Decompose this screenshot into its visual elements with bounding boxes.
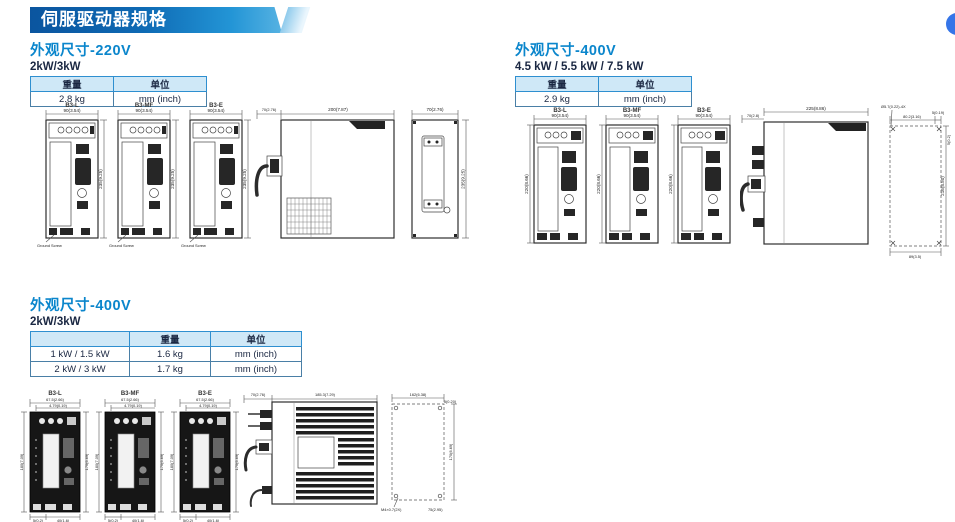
dim-height-label: 220(8.66) [596,174,601,194]
terminal-wires [248,414,260,426]
dim-height-label: 220(8.66) [668,174,673,194]
dim-mount-height-label: 216(8.50) [940,176,945,196]
unit-value: mm (inch) [211,347,302,362]
dim-width2-label: 4.79(0.19) [49,403,67,408]
section2-title: 外观尺寸-400V [515,39,616,60]
dim-offset-label: 5(0.20) [444,399,457,404]
mounting-outline-400v-small: 162(6.38) 5(0.20) 170(6.69) M4×0.7(2X) 7… [380,388,460,513]
cable [245,447,256,470]
dim-height-left-label: 180(7.09) [95,453,99,470]
dim-height-label: 235(9.25) [242,169,247,189]
section2-power-rating: 4.5 kW / 5.5 kW / 7.5 kW [515,61,643,73]
dim-bottom-width-label: 75(2.95) [428,507,443,512]
cable-2 [251,490,262,506]
weight-header: 重量 [31,77,114,92]
drive-rear-view-220v: 70(2.76) 235(9.25) [400,100,475,250]
section1-drawings: B3-L 90(3.54) 235(9.25) Ground Screw B3-… [28,100,478,260]
dim-mount-width-label: 80.2(3.16) [903,114,921,119]
dim-width-label: 67.5(2.66) [196,397,214,402]
section3-title: 外观尺寸-400V [30,294,131,315]
page-edge-bubble [946,13,955,35]
unit-value: mm (inch) [211,362,302,377]
dim-height-label: 235(9.25) [98,169,103,189]
dim-height-label: 220(8.66) [524,174,529,194]
weight-value: 1.7 kg [130,362,211,377]
ground-screw-label: Ground Screw [181,243,206,248]
table-header-row: 重量 单位 [31,77,207,92]
drive-front-b3l-400v: B3-L 90(3.54) 220(8.66) [524,105,599,255]
document-page: 伺服驱动器规格 外观尺寸-220V 2kW/3kW 重量 单位 2.8 kg m… [0,0,955,522]
drive-front-b3l-400v-small: B3-L 67.5(2.66) 4.79(0.19) 180(7.09) 170… [20,388,95,522]
dim-height-label: 235(9.25) [461,169,466,189]
dim-offset-label: 5(0.19) [932,110,945,115]
dim-connector-label: 70(2.8) [747,113,760,118]
dim-height-label: 235(9.25) [170,169,175,189]
dim-height-left-label: 180(7.09) [20,453,24,470]
drive-side-view-220v: 70(2.76) 200(7.87) [253,100,403,250]
dim-bottom1-label: 5(0.2) [183,518,194,522]
dim-depth-label: 185.3(7.29) [315,392,336,397]
dim-depth-label: 200(7.87) [328,107,348,112]
banner-title: 伺服驱动器规格 [30,7,282,33]
dim-width-label: 90(3.54) [695,113,713,118]
dim-width-label: 70(2.76) [426,107,444,112]
dim-depth-label: 225(8.86) [806,106,826,111]
dim-width2-label: 4.79(0.19) [124,403,142,408]
model-value: 1 kW / 1.5 kW [31,347,130,362]
dim-bottom2-label: 40(1.6) [207,518,220,522]
dim-width-label: 90(3.54) [623,113,641,118]
table-header-row: 重量 单位 [31,332,302,347]
title-banner: 伺服驱动器规格 [30,7,282,33]
dim-height-right-label: 170(6.69) [234,453,239,470]
section2-drawings: B3-L 90(3.54) 220(8.66) B3-MF 90(3.54) 2… [512,100,955,265]
dim-width-label: 90(3.54) [63,108,81,113]
section1-title: 外观尺寸-220V [30,39,131,60]
section3-spec-table: 重量 单位 1 kW / 1.5 kW 1.6 kg mm (inch) 2 k… [30,331,302,377]
drive-front-b3e-220v: B3-E 90(3.54) 235(9.25) Ground Screw [180,100,255,250]
drive-front-b3e-400v-small: B3-E 67.5(2.66) 4.79(0.19) 180(7.09) 170… [170,388,245,522]
dim-connector-label: 70(2.76) [251,392,266,397]
unit-header: 单位 [599,77,692,92]
dim-width-label: 67.5(2.66) [121,397,139,402]
screw-spec-label: M4×0.7(2X) [381,507,402,512]
dim-height-left-label: 180(7.09) [170,453,174,470]
unit-header: 单位 [114,77,207,92]
unit-header: 单位 [211,332,302,347]
drive-front-b3mf-400v-small: B3-MF 67.5(2.66) 4.79(0.19) 180(7.09) 17… [95,388,170,522]
section3-power-rating: 2kW/3kW [30,316,81,328]
drive-side-view-400v: 225(8.86) 70(2.8) [740,100,875,255]
dim-width-label: 67.5(2.66) [46,397,64,402]
banner-tail-decoration [280,7,310,33]
weight-header: 重量 [516,77,599,92]
dim-connector-label: 70(2.76) [262,107,277,112]
dim-bottom-width-label: 89(3.5) [909,254,922,259]
dim-width2-label: 4.79(0.19) [199,403,217,408]
cable [741,184,748,210]
dim-height-right-label: 170(6.69) [159,453,164,470]
dim-bottom1-label: 5(0.2) [33,518,44,522]
cable [256,166,267,195]
weight-header: 重量 [130,332,211,347]
hole-callout-label: Ø5.7(0.22)-4X [881,104,906,109]
dim-bottom1-label: 5(0.2) [108,518,119,522]
dim-corner-label: 5(0.2) [946,134,951,145]
model-header [31,332,130,347]
dim-width-label: 90(3.54) [135,108,153,113]
drive-front-b3mf-220v: B3-MF 90(3.54) 235(9.25) Ground Screw [108,100,183,250]
weight-value: 1.6 kg [130,347,211,362]
ground-screw-label: Ground Screw [109,243,134,248]
corner-screw-marks [891,127,941,245]
drive-front-b3e-400v: B3-E 90(3.54) 220(8.66) [668,105,743,255]
dim-width-label: 90(3.54) [207,108,225,113]
dim-mount-width-label: 162(6.38) [410,392,427,397]
dim-width-label: 90(3.54) [551,113,569,118]
table-row: 1 kW / 1.5 kW 1.6 kg mm (inch) [31,347,302,362]
dim-mount-height-label: 170(6.69) [448,443,453,460]
section1-power-rating: 2kW/3kW [30,61,81,73]
drive-front-b3l-220v: B3-L 90(3.54) 235(9.25) Ground Screw [36,100,111,250]
ground-screw-label: Ground Screw [37,243,62,248]
drive-front-b3mf-400v: B3-MF 90(3.54) 220(8.66) [596,105,671,255]
table-row: 2 kW / 3 kW 1.7 kg mm (inch) [31,362,302,377]
fan-opening [298,437,334,468]
dim-bottom2-label: 40(1.6) [132,518,145,522]
model-value: 2 kW / 3 kW [31,362,130,377]
mounting-outline-400v: Ø5.7(0.22)-4X 80.2(3.16) 5(0.19) 5(0.2) … [880,100,952,260]
dim-bottom2-label: 40(1.6) [57,518,70,522]
dim-height-right-label: 170(6.69) [84,453,89,470]
drive-side-view-heatsink: 70(2.76) 185.3(7.29) [240,388,380,513]
table-header-row: 重量 单位 [516,77,692,92]
section3-drawings: B3-L 67.5(2.66) 4.79(0.19) 180(7.09) 170… [12,383,472,518]
